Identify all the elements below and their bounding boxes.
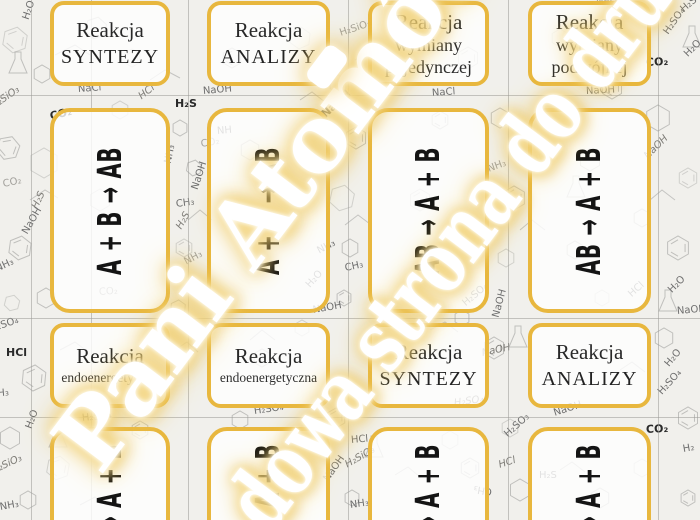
card-title-line: Reakcja <box>235 17 303 43</box>
bg-formula-label: HCl <box>6 346 27 359</box>
flashcard-formula-card: AB → A + B <box>528 427 651 520</box>
card-title-line: Reakcja <box>76 17 144 43</box>
card-formula-text: A + B → AB <box>91 146 129 274</box>
card-formula-text: AB → A + B <box>409 444 447 520</box>
flashcard-title-card: ReakcjaSYNTEZY <box>50 1 170 86</box>
cut-line-vertical <box>658 0 659 520</box>
card-formula-text: AB → A + B <box>570 444 608 520</box>
card-title-line: SYNTEZY <box>61 44 159 70</box>
bg-formula-label: H₂ <box>682 442 695 455</box>
cut-line-vertical <box>508 0 509 520</box>
card-title-line: Reakcja <box>556 339 624 365</box>
flashcard-formula-card: AB → A + B <box>368 427 489 520</box>
bg-formula-label: H₂S <box>175 97 197 110</box>
flashcard-print-sheet: H₂ONaClHClH₂SNaOHH₂SiO₃NaClNaOHNaOHH₂SH₂… <box>0 0 700 520</box>
bg-formula-label: NaCl <box>432 86 456 99</box>
card-title-line: ANALIZY <box>542 366 638 392</box>
cut-line-vertical <box>31 0 32 520</box>
flashcard-title-card: ReakcjaANALIZY <box>528 323 651 408</box>
card-title-line: Reakcja <box>235 343 303 369</box>
card-formula-text: AB → A + B <box>570 146 608 274</box>
bg-formula-label: NaOH <box>677 303 700 316</box>
bg-formula-label: NH₃ <box>0 387 9 400</box>
